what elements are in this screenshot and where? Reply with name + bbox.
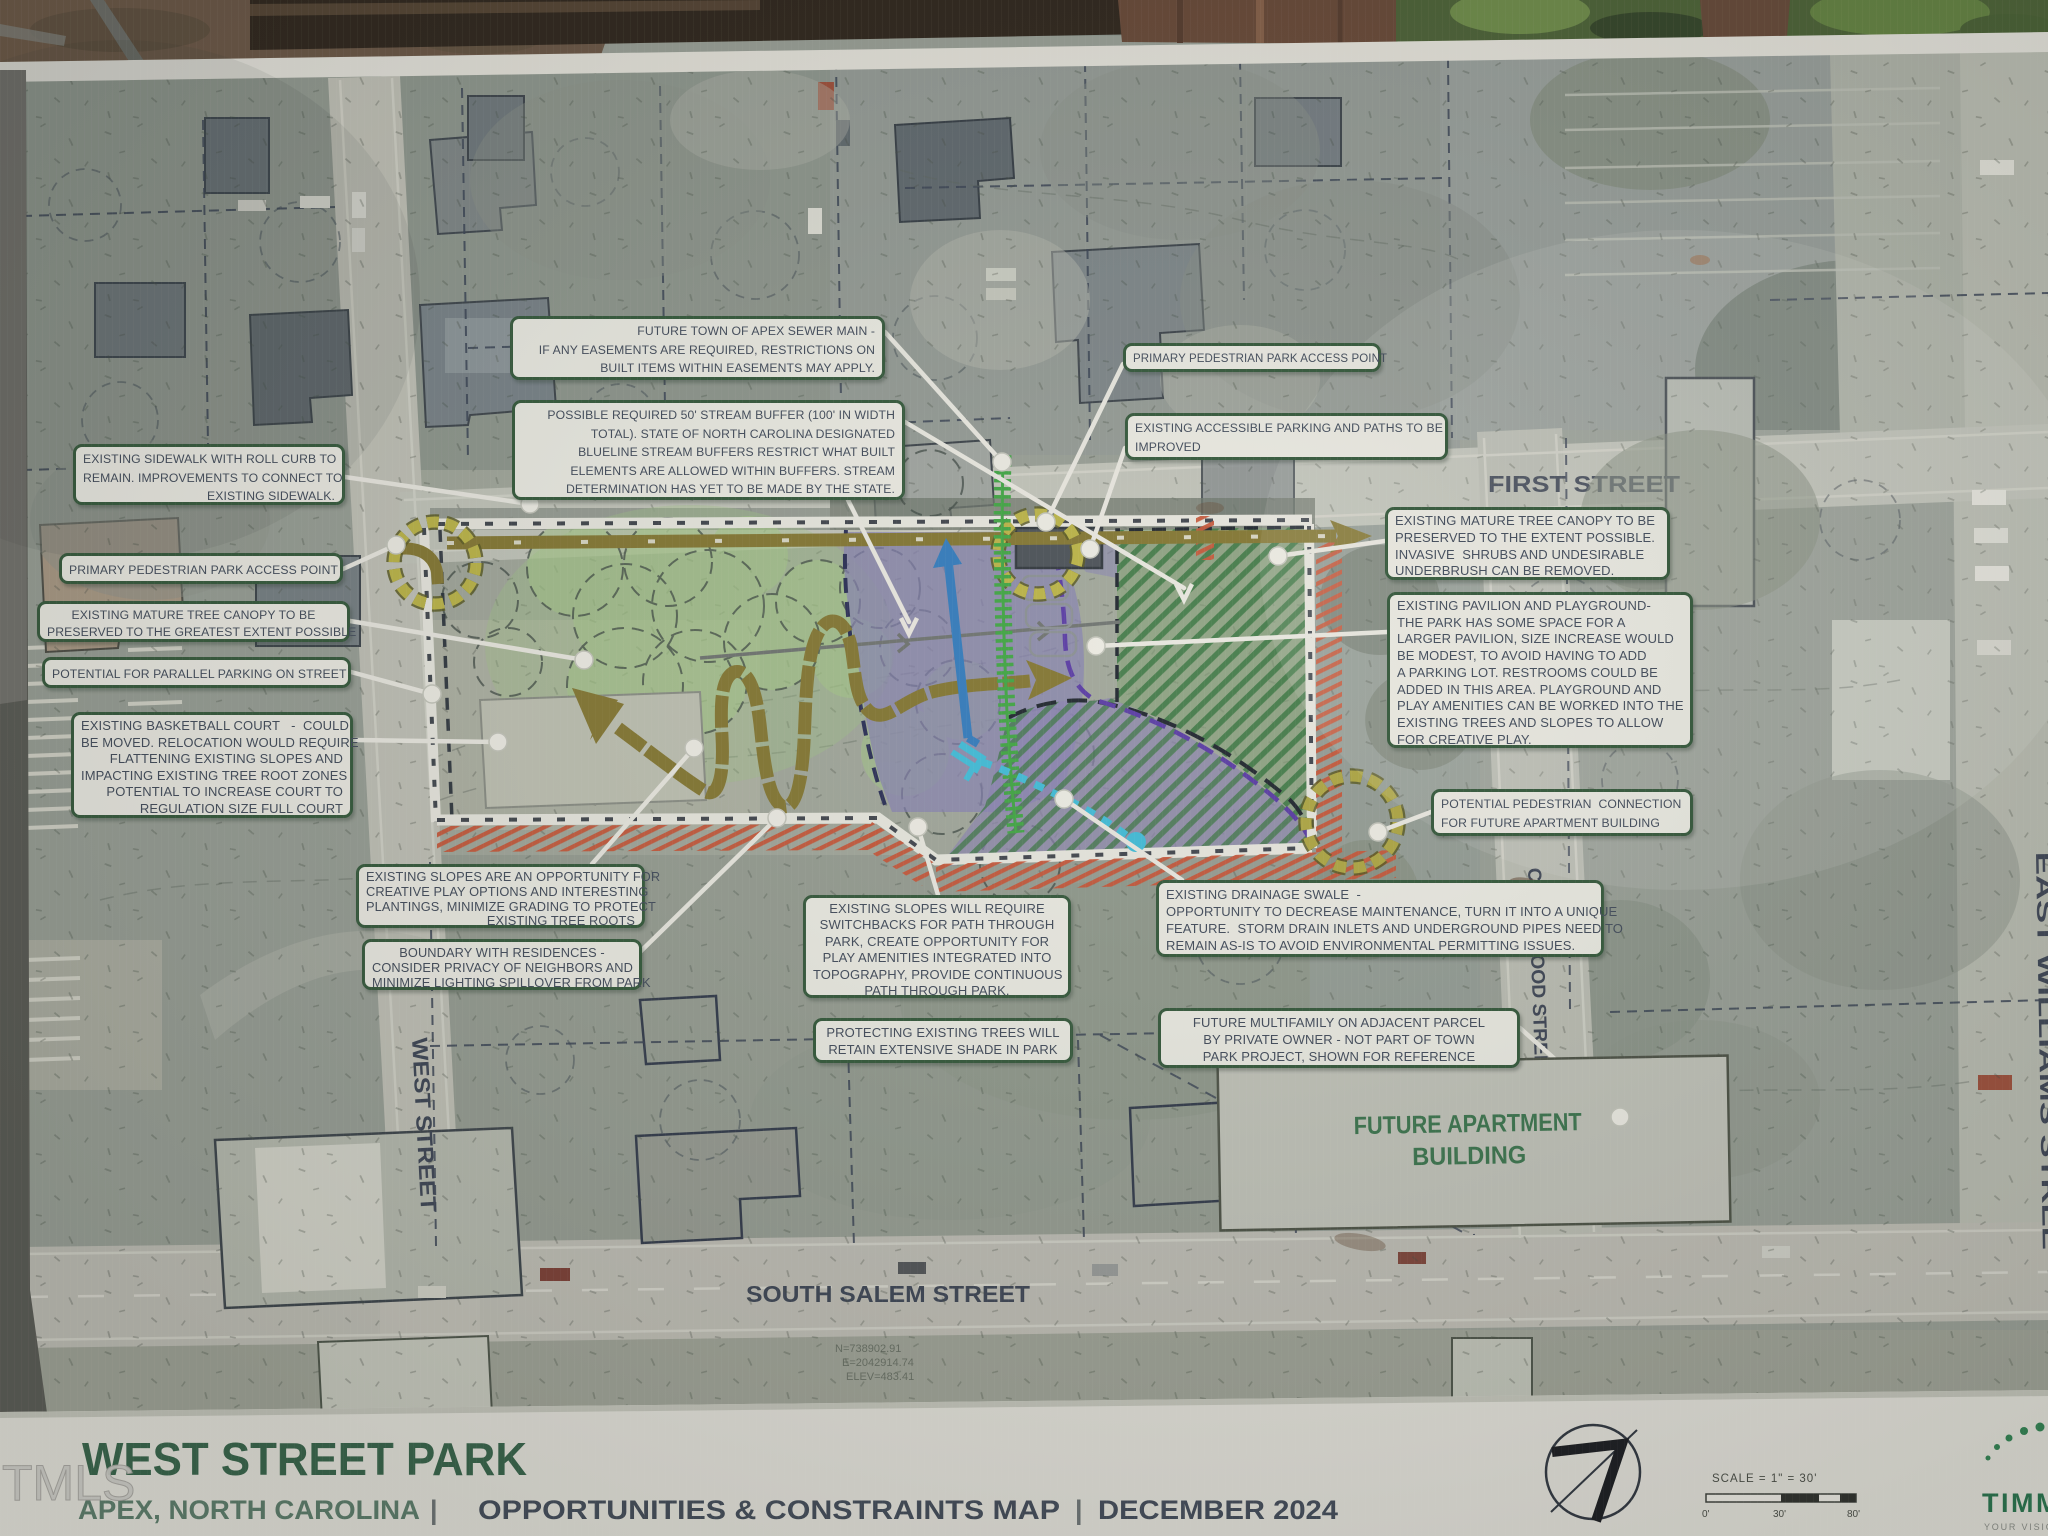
- svg-text:80': 80': [1847, 1509, 1860, 1520]
- svg-text:TMLS: TMLS: [2, 1455, 135, 1511]
- svg-text:|: |: [430, 1495, 438, 1525]
- svg-text:30': 30': [1773, 1509, 1786, 1520]
- svg-text:WEST STREET PARK: WEST STREET PARK: [82, 1433, 527, 1485]
- svg-text:YOUR VISION ACHIEV: YOUR VISION ACHIEV: [1984, 1522, 2048, 1532]
- svg-text:TIMMONS: TIMMONS: [1982, 1488, 2048, 1518]
- svg-text:DECEMBER 2024: DECEMBER 2024: [1098, 1495, 1338, 1525]
- svg-text:0': 0': [1702, 1509, 1710, 1520]
- svg-text:OPPORTUNITIES & CONSTRAINTS MA: OPPORTUNITIES & CONSTRAINTS MAP: [478, 1495, 1060, 1525]
- svg-text:SCALE = 1" = 30': SCALE = 1" = 30': [1712, 1473, 1817, 1485]
- svg-text:|: |: [1075, 1495, 1083, 1525]
